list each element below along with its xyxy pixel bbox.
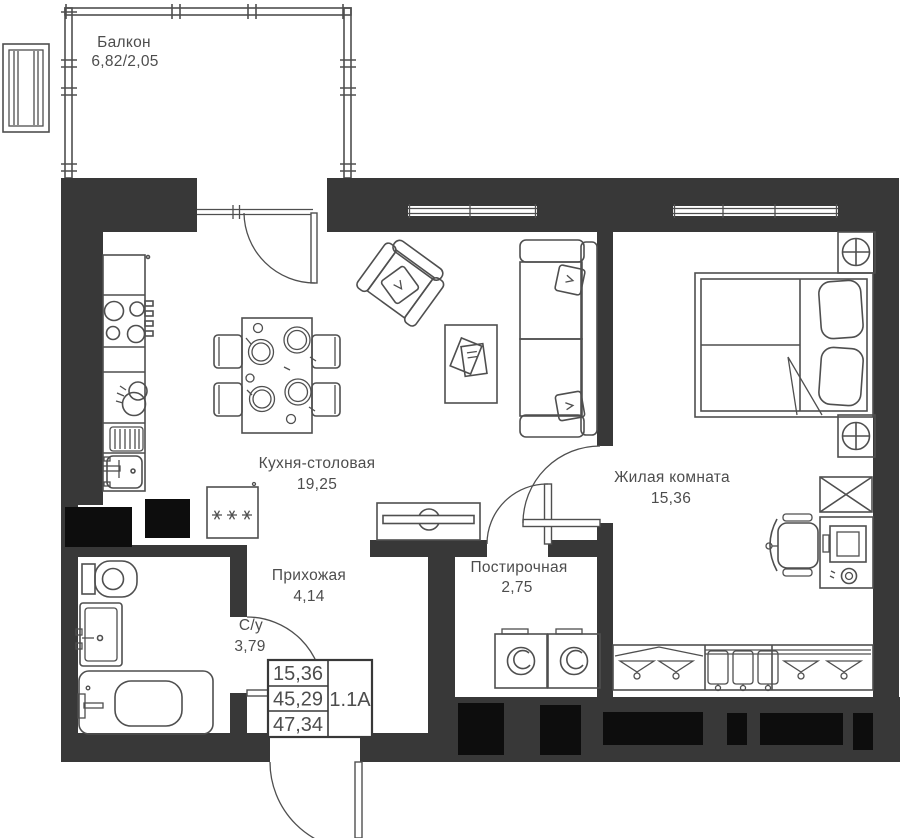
floor-plan: Балкон 6,82/2,05 Кухня-столовая 19,25 Жи…: [0, 0, 900, 838]
bathtub: [78, 671, 213, 734]
laundry-door: [487, 484, 552, 544]
kitchen-area: 19,25: [297, 476, 337, 493]
hallway-label: Прихожая: [272, 567, 346, 584]
info-unit-code: 1.1А: [329, 689, 371, 711]
desk: [820, 517, 873, 588]
kitchen-pot: [116, 382, 147, 416]
shelf-unit: [820, 477, 872, 512]
garments: [708, 651, 778, 691]
balcony-label: Балкон: [97, 34, 151, 51]
hangers: [620, 661, 861, 679]
exterior-window: [3, 44, 49, 132]
kitchen-window: [408, 204, 537, 218]
floor-plan-page: Балкон 6,82/2,05 Кухня-столовая 19,25 Жи…: [0, 0, 900, 838]
armchair: [355, 234, 451, 328]
office-chair: [766, 514, 818, 576]
living-room-window: [673, 204, 838, 218]
balcony-door: [244, 213, 317, 283]
washbasin: [76, 603, 122, 666]
dining-chair: [214, 335, 340, 416]
info-living-area: 15,36: [273, 663, 323, 685]
balcony-area: 6,82/2,05: [91, 53, 158, 70]
info-total-area: 47,34: [273, 714, 323, 736]
balcony-railing: [61, 4, 356, 178]
nightstand-lamp: [838, 232, 875, 457]
washing-machines: [495, 629, 600, 688]
wardrobe: [613, 645, 873, 691]
coffee-table: [445, 325, 497, 403]
info-area-no-balcony: 45,29: [273, 689, 323, 711]
dining-table: [214, 318, 340, 433]
fridge: [207, 483, 258, 539]
living-room-door: [523, 446, 600, 527]
tv-stand: [377, 503, 480, 540]
info-table: 15,36 45,29 47,34 1.1А: [268, 660, 372, 737]
sofa: [520, 240, 597, 437]
laundry-area: 2,75: [501, 579, 532, 596]
hallway-area: 4,14: [293, 588, 324, 605]
entrance-door: [270, 762, 362, 838]
bathroom-label: С/у: [239, 617, 263, 634]
balcony-door-window: [197, 205, 313, 219]
walls: [61, 178, 900, 762]
toilet: [82, 561, 137, 597]
laundry-label: Постирочная: [470, 559, 567, 576]
living-room-label: Жилая комната: [614, 469, 730, 486]
kitchen-label: Кухня-столовая: [259, 455, 376, 472]
living-room-area: 15,36: [651, 490, 691, 507]
room-labels: Балкон 6,82/2,05 Кухня-столовая 19,25 Жи…: [91, 34, 730, 655]
kitchen-sink: [103, 456, 142, 488]
dish-rack: [110, 427, 143, 451]
bed: [695, 273, 873, 417]
place-settings: [246, 324, 316, 424]
bathroom-area: 3,79: [234, 638, 265, 655]
